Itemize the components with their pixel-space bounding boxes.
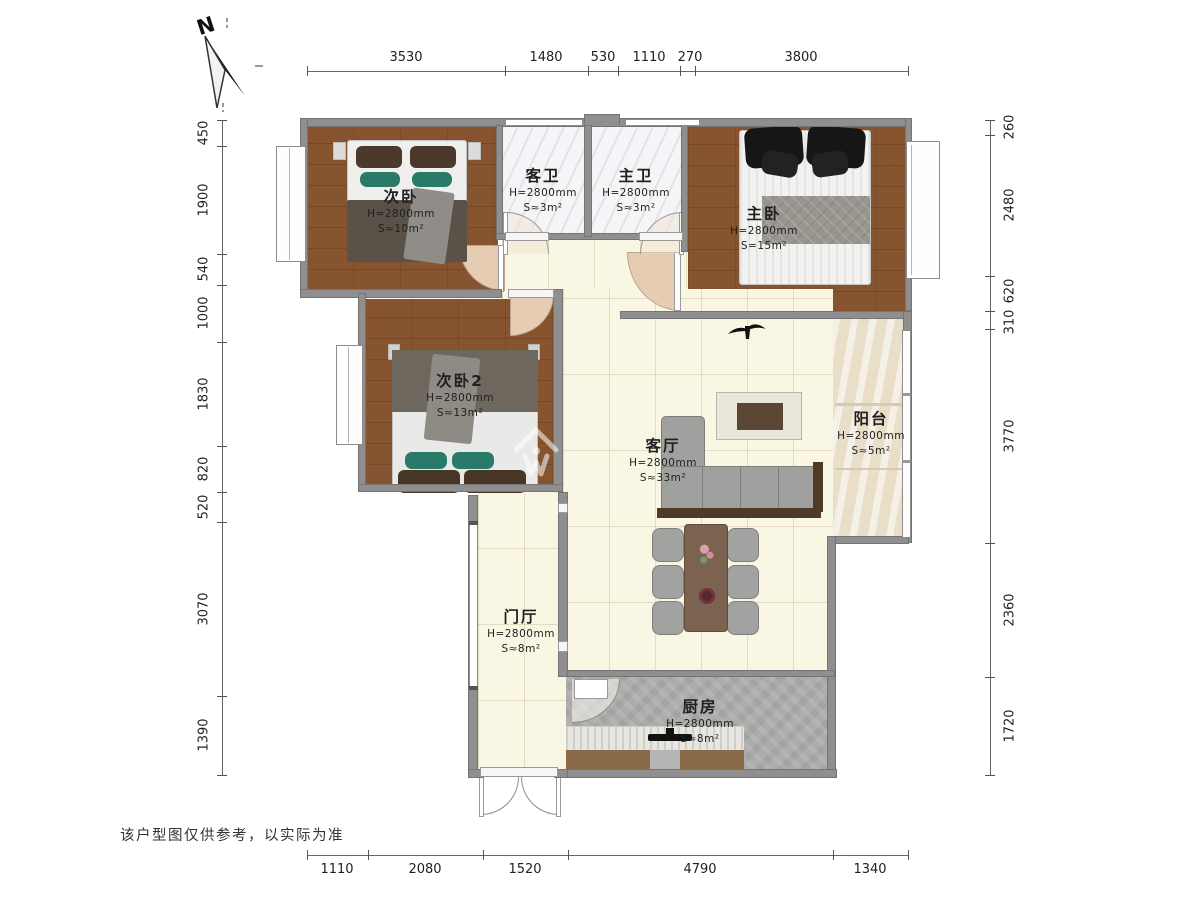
dimension-line-bottom: [307, 855, 908, 856]
dim-tick: [217, 285, 227, 286]
dim-tick: [985, 543, 995, 544]
dim-tick: [217, 492, 227, 493]
room-height: H=2800mm: [666, 717, 734, 732]
room-name: 次卧: [367, 188, 435, 207]
dim-label-left: 820: [197, 457, 212, 482]
dim-tick: [505, 66, 506, 76]
window-second-bedroom: [276, 146, 306, 262]
dining-table: [684, 524, 728, 632]
wall: [584, 125, 592, 237]
pillow: [410, 146, 456, 168]
pillow: [356, 146, 402, 168]
entry-door-right-leaf: [556, 777, 561, 817]
nightstand: [333, 142, 346, 160]
dim-tick: [908, 850, 909, 860]
entry-door-left-arc: [481, 777, 519, 815]
dimension-line-top: [307, 71, 908, 72]
wall: [620, 311, 912, 319]
window-cap: [469, 521, 478, 525]
dim-label-right: 620: [1003, 279, 1018, 304]
cushion-teal: [412, 172, 452, 187]
room-name: 厨房: [666, 698, 734, 717]
door-frame-second-bedroom2: [508, 289, 554, 298]
cushion-teal: [360, 172, 400, 187]
dim-label-left: 3070: [197, 592, 212, 625]
dim-tick: [568, 850, 569, 860]
dim-tick: [985, 276, 995, 277]
window-entry-hall: [469, 523, 478, 689]
dim-tick: [985, 311, 995, 312]
table-bowl: [699, 588, 715, 604]
kitchen-door-leaf: [574, 679, 608, 699]
room-label-master-bedroom: 主卧 H=2800mm S=15m²: [730, 205, 798, 254]
dim-label-top: 3530: [389, 50, 422, 65]
sofa-base: [657, 508, 821, 518]
room-height: H=2800mm: [426, 391, 494, 406]
door-jamb: [558, 503, 568, 513]
dining-chair: [727, 601, 759, 635]
watermark-logo: [512, 424, 560, 478]
room-area: S≈5m²: [837, 444, 905, 459]
dim-tick: [985, 677, 995, 678]
dim-label-top: 270: [678, 50, 703, 65]
cushion-teal: [405, 452, 447, 469]
dim-label-bottom: 1520: [508, 862, 541, 877]
window-mullion: [289, 148, 290, 260]
dim-label-left: 1900: [197, 183, 212, 216]
dining-chair: [727, 565, 759, 599]
floor-plan: 次卧 H=2800mm S≈10m² 客卫 H=2800mm S≈3m² 主卫 …: [0, 0, 1200, 900]
dim-label-right: 1720: [1003, 709, 1018, 742]
room-area: S≈13m²: [426, 406, 494, 421]
wall: [560, 670, 835, 677]
wall: [300, 289, 502, 298]
room-name: 阳台: [837, 410, 905, 429]
dim-tick: [695, 66, 696, 76]
window-guest-bath-top: [505, 119, 583, 126]
cushion-teal: [452, 452, 494, 469]
dim-tick: [217, 446, 227, 447]
room-area: S≈8m²: [487, 642, 555, 657]
room-area: S≈33m²: [629, 471, 697, 486]
dim-label-left: 1000: [197, 296, 212, 329]
compass-needle-icon: [195, 18, 265, 113]
dim-label-right: 260: [1003, 115, 1018, 140]
kitchen-cabinet: [566, 750, 650, 771]
dim-label-top: 1480: [529, 50, 562, 65]
dining-chair: [727, 528, 759, 562]
dim-label-bottom: 2080: [408, 862, 441, 877]
disclaimer-text: 该户型图仅供参考，以实际为准: [120, 824, 344, 845]
dim-tick: [307, 850, 308, 860]
wall: [560, 769, 837, 778]
window-second-bedroom2: [336, 345, 363, 445]
room-height: H=2800mm: [602, 186, 670, 201]
balcony-shelf-line: [835, 468, 905, 470]
room-height: H=2800mm: [730, 224, 798, 239]
room-area: S≈3m²: [509, 201, 577, 216]
sofa-cushion-line: [740, 467, 741, 511]
room-label-balcony: 阳台 H=2800mm S≈5m²: [837, 410, 905, 459]
entry-door-right-arc: [521, 777, 559, 815]
entry-door-left-leaf: [479, 777, 484, 817]
dining-chair: [652, 565, 684, 599]
dim-label-bottom: 1110: [320, 862, 353, 877]
room-height: H=2800mm: [837, 429, 905, 444]
sofa-arm: [813, 462, 823, 512]
dining-chair: [652, 528, 684, 562]
dim-label-left: 540: [197, 257, 212, 282]
room-height: H=2800mm: [367, 207, 435, 222]
room-label-second-bedroom2: 次卧2 H=2800mm S≈13m²: [426, 372, 494, 421]
dim-tick: [618, 66, 619, 76]
dim-label-left: 520: [197, 495, 212, 520]
dim-label-top: 1110: [632, 50, 665, 65]
dim-tick: [680, 66, 681, 76]
room-height: H=2800mm: [487, 627, 555, 642]
wall: [496, 125, 503, 237]
sofa-cushion-line: [778, 467, 779, 511]
door-jamb: [558, 641, 568, 652]
dim-label-bottom: 4790: [683, 862, 716, 877]
room-label-entry-hall: 门厅 H=2800mm S≈8m²: [487, 608, 555, 657]
dim-tick: [217, 120, 227, 121]
dim-tick: [217, 522, 227, 523]
dim-label-right: 2360: [1003, 593, 1018, 626]
window-mullion: [902, 393, 911, 396]
tv: [737, 403, 783, 430]
room-name: 主卧: [730, 205, 798, 224]
dim-label-top: 530: [591, 50, 616, 65]
dim-label-bottom: 1340: [853, 862, 886, 877]
ceiling-fan-icon: [726, 318, 768, 340]
room-label-kitchen: 厨房 H=2800mm S≈8m²: [666, 698, 734, 747]
dim-tick: [833, 850, 834, 860]
dim-tick: [217, 254, 227, 255]
wall: [827, 536, 836, 777]
room-label-second-bedroom: 次卧 H=2800mm S≈10m²: [367, 188, 435, 237]
table-flowers: [698, 542, 714, 566]
kitchen-cabinet: [680, 750, 744, 771]
wall: [833, 536, 909, 544]
room-name: 次卧2: [426, 372, 494, 391]
kitchen-stove: [650, 750, 680, 771]
door-frame-guest-bath: [505, 232, 549, 241]
dim-tick: [985, 135, 995, 136]
room-name: 主卫: [602, 167, 670, 186]
room-label-living-room: 客厅 H=2800mm S≈33m²: [629, 437, 697, 486]
dim-label-right: 3770: [1003, 419, 1018, 452]
room-name: 门厅: [487, 608, 555, 627]
dimension-line-left: [222, 120, 223, 775]
wall: [358, 484, 563, 492]
window-cap: [469, 686, 478, 690]
dim-tick: [217, 146, 227, 147]
room-area: S≈8m²: [666, 732, 734, 747]
dim-tick: [217, 342, 227, 343]
dim-label-right: 310: [1003, 310, 1018, 335]
dim-label-left: 1390: [197, 718, 212, 751]
balcony-shelf-line: [835, 403, 905, 406]
dim-tick: [307, 66, 308, 76]
room-height: H=2800mm: [509, 186, 577, 201]
dim-tick: [908, 66, 909, 76]
window-master-bath-top: [625, 119, 700, 126]
dim-tick: [368, 850, 369, 860]
room-area: S≈10m²: [367, 222, 435, 237]
sofa-cushion-line: [702, 467, 703, 511]
dim-tick: [588, 66, 589, 76]
dim-tick: [985, 329, 995, 330]
door-frame-master-bath: [639, 232, 683, 241]
room-label-master-bath: 主卫 H=2800mm S≈3m²: [602, 167, 670, 216]
window-mullion: [348, 347, 349, 443]
master-bedroom-door-leaf: [674, 252, 681, 311]
dim-label-right: 2480: [1003, 188, 1018, 221]
dim-tick: [985, 775, 995, 776]
dim-tick: [217, 696, 227, 697]
room-area: S≈3m²: [602, 201, 670, 216]
dim-tick: [217, 775, 227, 776]
dining-chair: [652, 601, 684, 635]
dim-tick: [483, 850, 484, 860]
room-area: S=15m²: [730, 239, 798, 254]
dim-label-top: 3800: [784, 50, 817, 65]
dim-label-left: 450: [197, 121, 212, 146]
entry-door-frame: [480, 767, 558, 777]
nightstand: [468, 142, 481, 160]
dim-label-left: 1830: [197, 377, 212, 410]
room-name: 客卫: [509, 167, 577, 186]
window-mullion: [911, 145, 912, 275]
room-name: 客厅: [629, 437, 697, 456]
room-label-guest-bath: 客卫 H=2800mm S≈3m²: [509, 167, 577, 216]
room-height: H=2800mm: [629, 456, 697, 471]
dim-tick: [985, 120, 995, 121]
window-mullion: [902, 460, 911, 463]
